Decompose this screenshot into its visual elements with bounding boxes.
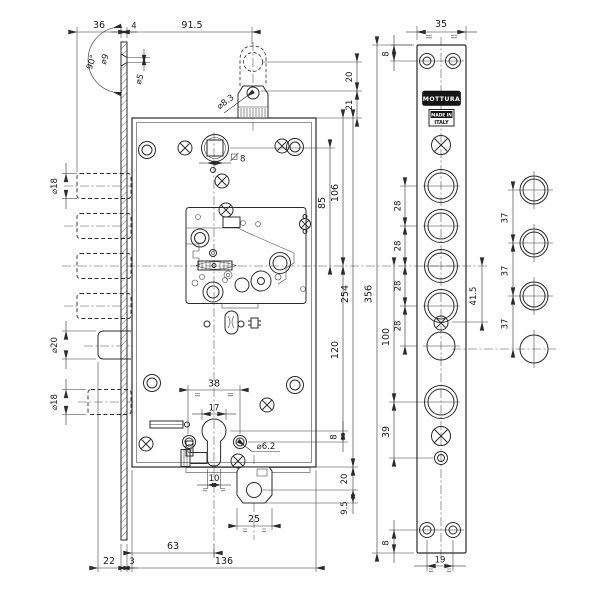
dim-85-label: 85 [317,197,328,209]
dim-square8-label: 8 [240,155,245,165]
dim-28-label: 28 [394,241,404,252]
dim-vertical-right: 85 106 120 8 254 [230,118,358,467]
dim-dia20-label: ⌀20 [50,337,60,353]
follower-square-hole [207,140,223,156]
bushing [139,142,156,159]
dim-37-label: 37 [501,319,511,330]
euro-cylinder [183,419,247,466]
dim-41-5-label: 41.5 [469,287,479,306]
phillips-screw-icon [231,454,245,468]
latch-spring [150,421,190,428]
dim-bottom-tab: 20 9.5 [262,467,358,515]
dim-screw-spacing: 19 [414,540,466,571]
dim-10-label: 10 [209,474,220,484]
dim-left-diameters: ⌀18 ⌀20 ⌀18 [50,163,96,425]
stop-block [248,318,261,328]
dim-9-5-label: 9.5 [340,501,350,515]
dim-20b-label: 20 [340,474,350,485]
phillips-screw-icon [215,174,229,188]
faceplate-face-view: MOTTURA MADE IN ITALY [417,45,466,553]
phillips-screw-icon [260,398,274,412]
dim-tab-offsets: 20 21 [261,62,362,118]
dim-4-label: 4 [131,22,136,32]
pin-cluster [300,215,311,234]
double-bit-key-slot [196,261,236,270]
front-view [77,42,316,540]
dim-8-label: 8 [330,434,340,439]
made-in-italy-badge: MADE IN ITALY [429,110,454,127]
counterplate-holes [520,171,548,368]
dim-20-label: 20 [345,72,355,83]
handle-follower [202,135,229,162]
dim-22-label: 22 [103,556,115,567]
dim-28-label: 28 [394,281,404,292]
technical-drawing-page: MOTTURA MADE IN ITALY 36 4 91.5 [0,0,600,600]
dim-136-label: 136 [215,556,233,567]
dim-19-label: 19 [435,556,446,566]
lever-capsule [225,311,238,334]
dim-90deg-label: 90° [85,54,99,71]
dim-100-label: 100 [381,328,392,346]
cylinder-fixing-screw [181,450,207,467]
dim-counterplate-spacing: 37 37 37 [501,190,554,349]
dim-dia5-label: ⌀5 [134,73,147,86]
dim-dia8-3-label: ⌀8.3 [215,93,236,112]
dim-dia9-label: ⌀9 [99,53,112,66]
mechanism-wheels [191,229,306,302]
dim-106-label: 106 [330,184,341,202]
made-in-text: MADE IN [431,112,452,118]
dim-17-label: 17 [209,404,220,414]
cylinder-fixing-hole [183,436,196,449]
dim-bolt-spacing: 28 28 28 28 [394,186,418,346]
phillips-screw-icon [178,141,192,155]
phillips-screw-icon [300,219,311,230]
bottom-fixing-tab [237,467,272,503]
dim-28-label: 28 [394,321,404,332]
lock-technical-drawing: MOTTURA MADE IN ITALY 36 4 91.5 [0,0,600,600]
dim-dia18-top-label: ⌀18 [50,178,60,194]
dim-63-label: 63 [167,541,179,552]
mechanism-plate [186,208,306,335]
faceplate-edge-section [121,42,127,540]
dim-tab-axis: 91.5 [127,20,252,32]
dim-follower-square: 8 [199,153,245,165]
dim-faceplate-length: 356 [364,45,415,553]
cylinder-fixing-hole [234,436,247,449]
brand-logo: MOTTURA [423,91,461,106]
brand-logo-text: MOTTURA [423,96,460,103]
dim-dia18-bottom-label: ⌀18 [50,394,60,410]
lock-body [132,118,316,473]
dim-37-label: 37 [501,266,511,277]
dim-countersink: 90° ⌀9 ⌀5 [85,28,150,92]
dim-39-label: 39 [381,426,392,438]
dim-38-label: 38 [208,379,220,390]
dim-21-label: 21 [345,100,355,111]
dim-25-label: 25 [248,514,260,525]
dim-41-5: 41.5 [452,266,488,322]
dim-120-label: 120 [330,341,341,359]
bushing [287,377,304,394]
dim-3-label: 3 [129,557,134,567]
phillips-screw-icon [219,203,233,217]
dim-8-top-label: 8 [382,51,392,56]
dim-254-label: 254 [340,285,351,303]
phillips-screw-icon [139,437,153,451]
dim-36-label: 36 [93,20,105,31]
italy-text: ITALY [434,120,449,126]
dim-356-label: 356 [364,285,375,303]
dim-faceplate-thickness-top: 4 [111,22,137,33]
bushing [144,375,161,392]
dim-28-label: 28 [394,201,404,212]
dim-35-label: 35 [435,19,447,30]
dim-37-label: 37 [501,213,511,224]
dim-8-bottom-label: 8 [382,540,392,545]
square-symbol-icon [232,154,238,160]
dim-dia6-2-label: ⌀6.2 [257,442,276,452]
dim-91-5-label: 91.5 [181,20,202,31]
